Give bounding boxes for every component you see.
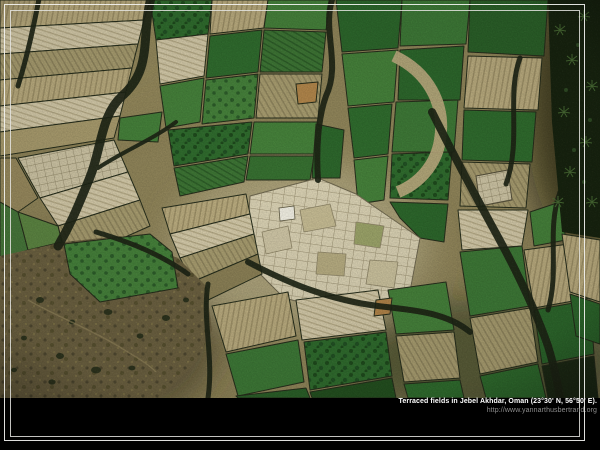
photo-caption-text: Terraced fields in Jebel Akhdar, Oman (2… [399, 398, 597, 406]
terraced-fields-illustration [0, 0, 600, 398]
wallpaper-canvas: Terraced fields in Jebel Akhdar, Oman (2… [0, 0, 600, 450]
aerial-photo-terraced-fields [0, 0, 600, 398]
photo-credit-url: http://www.yannarthusbertrand.org [399, 407, 597, 414]
caption-block: Terraced fields in Jebel Akhdar, Oman (2… [399, 398, 597, 414]
